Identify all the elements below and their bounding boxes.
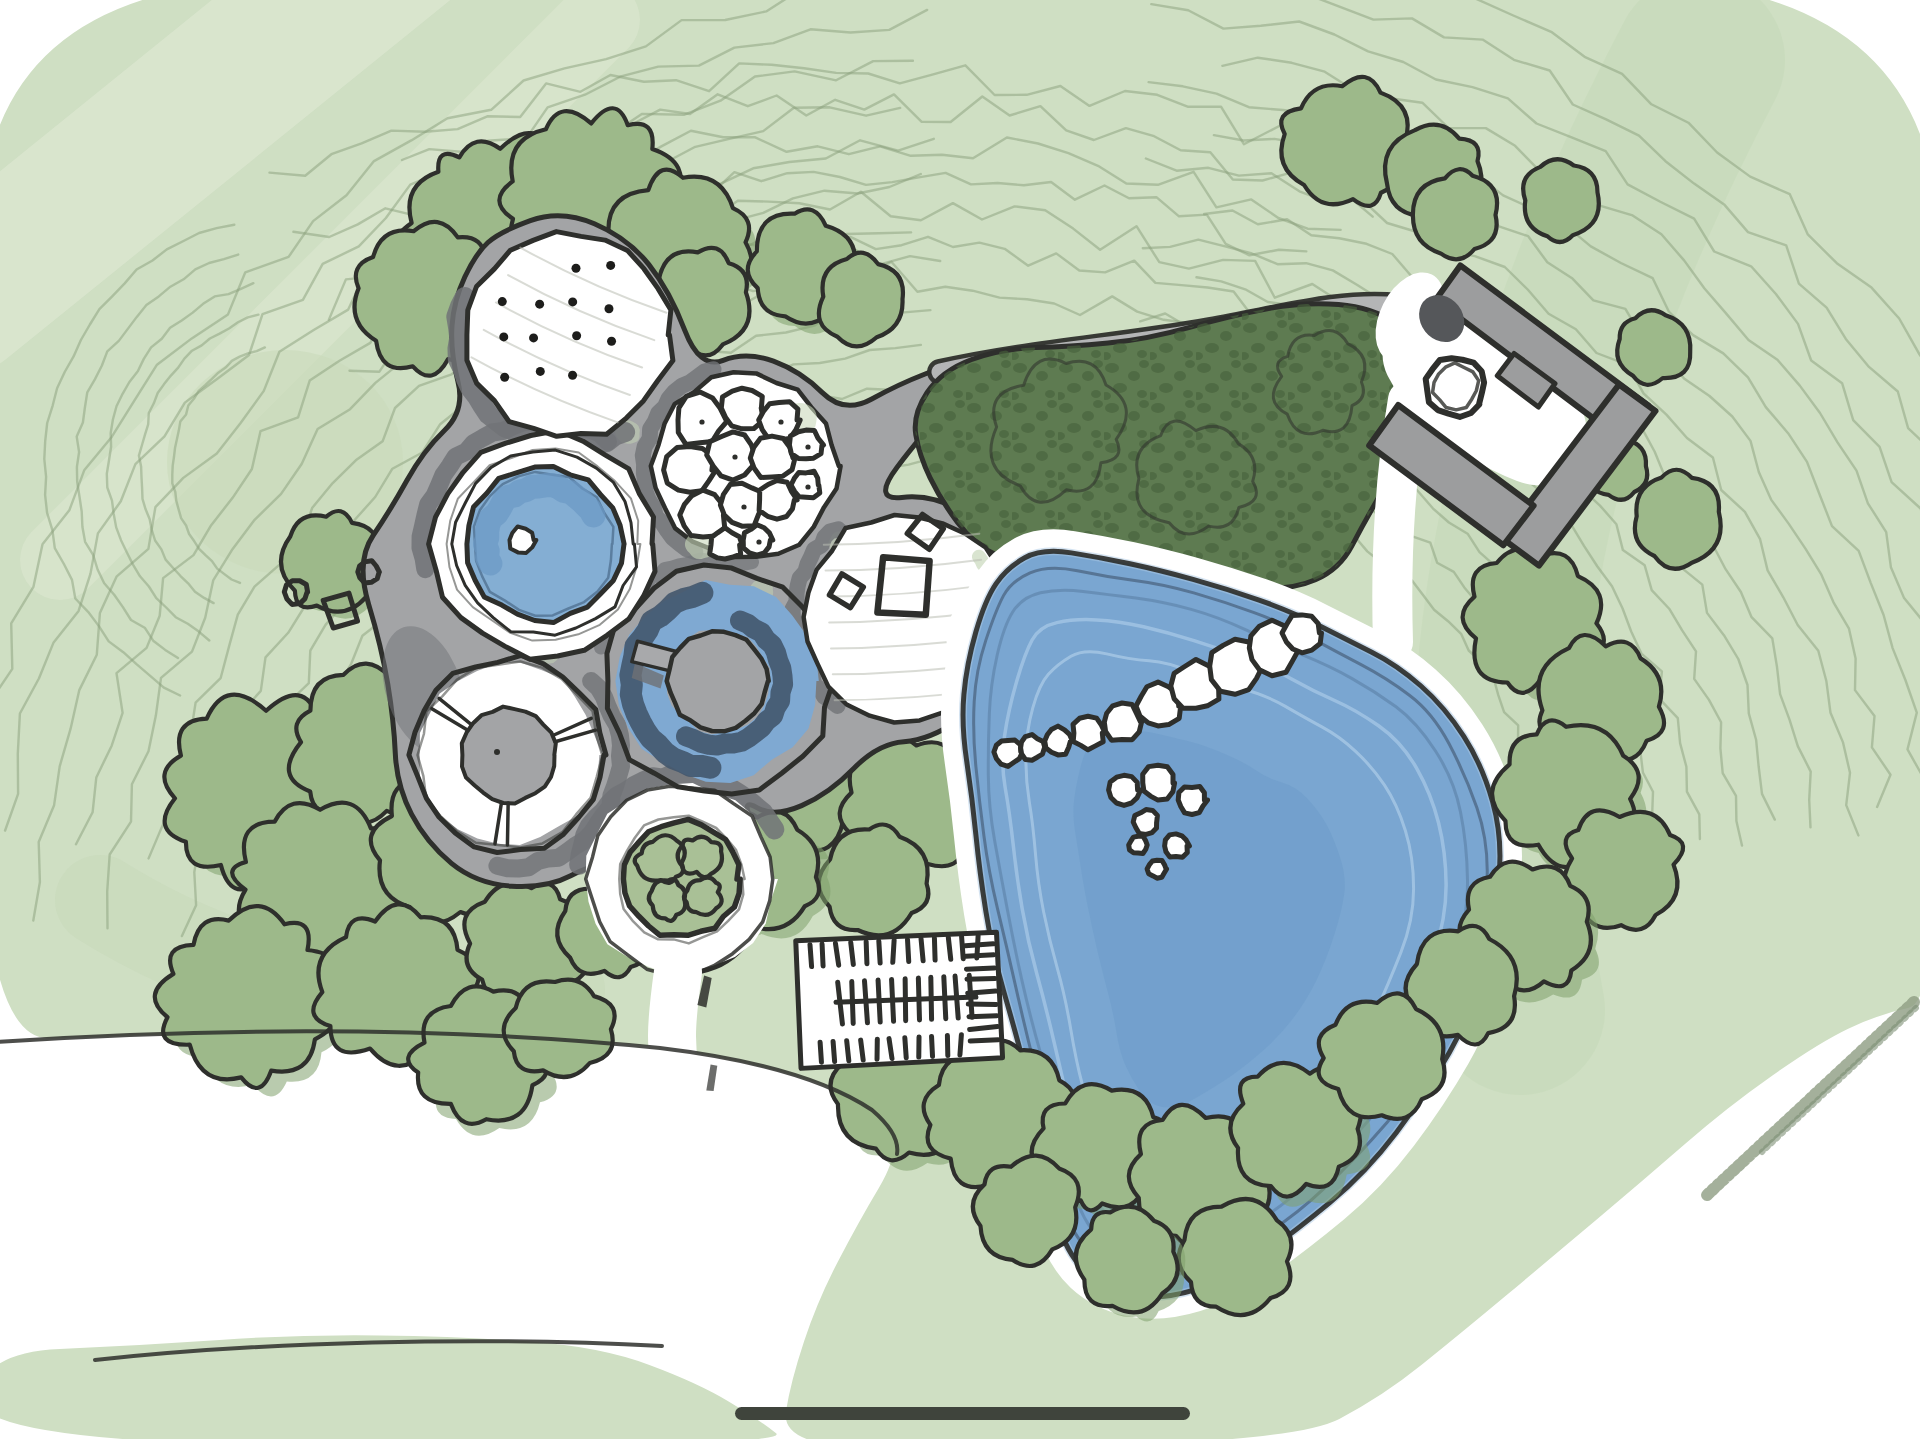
masterplan-canvas [0, 0, 1920, 1439]
home-indicator[interactable] [735, 1407, 1190, 1420]
masterplan-stage [0, 0, 1920, 1439]
parking-lot [794, 930, 1003, 1068]
